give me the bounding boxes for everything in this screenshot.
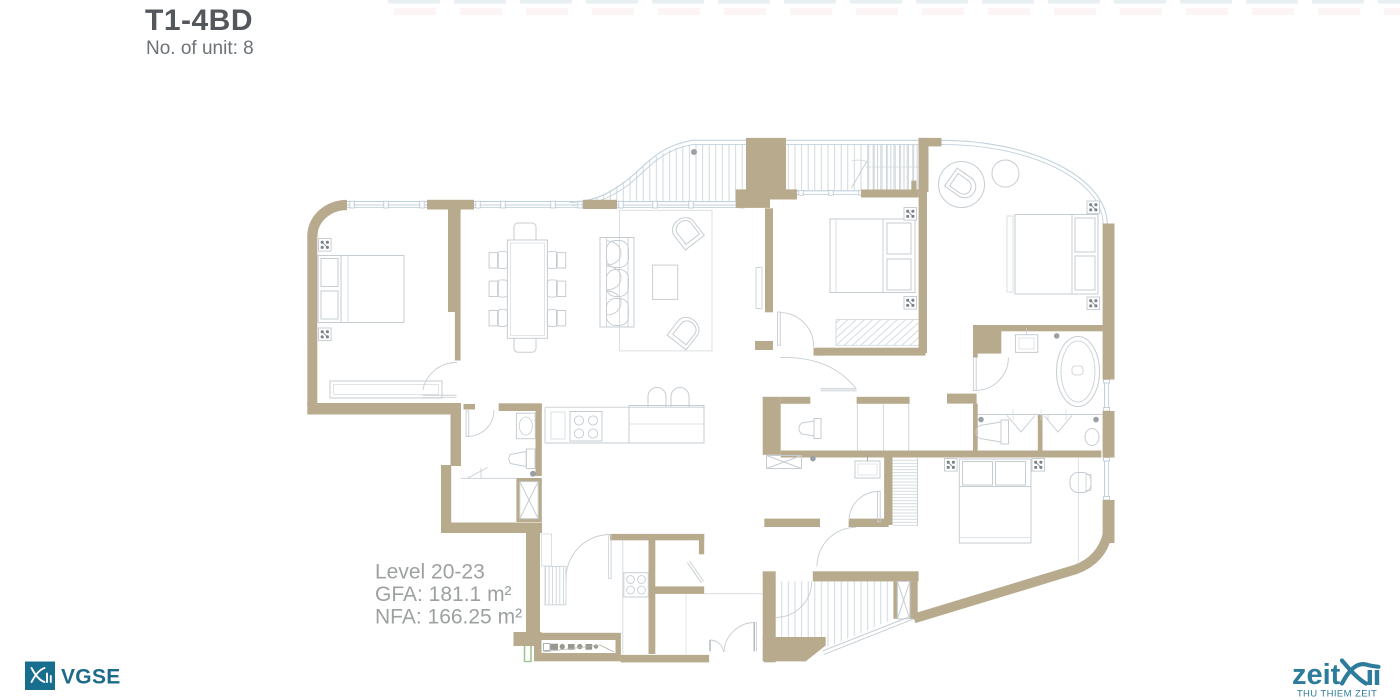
svg-text:zeit: zeit: [1292, 659, 1341, 691]
svg-text:THU THIEM ZEIT: THU THIEM ZEIT: [1297, 689, 1377, 700]
svg-text:T1-4BD: T1-4BD: [145, 4, 253, 37]
svg-text:GFA: 181.1 m²: GFA: 181.1 m²: [375, 583, 512, 606]
svg-text:VGSE: VGSE: [61, 666, 121, 689]
svg-text:NFA: 166.25 m²: NFA: 166.25 m²: [375, 606, 522, 629]
svg-text:No. of unit: 8: No. of unit: 8: [146, 38, 254, 59]
svg-text:Level 20-23: Level 20-23: [375, 561, 485, 584]
